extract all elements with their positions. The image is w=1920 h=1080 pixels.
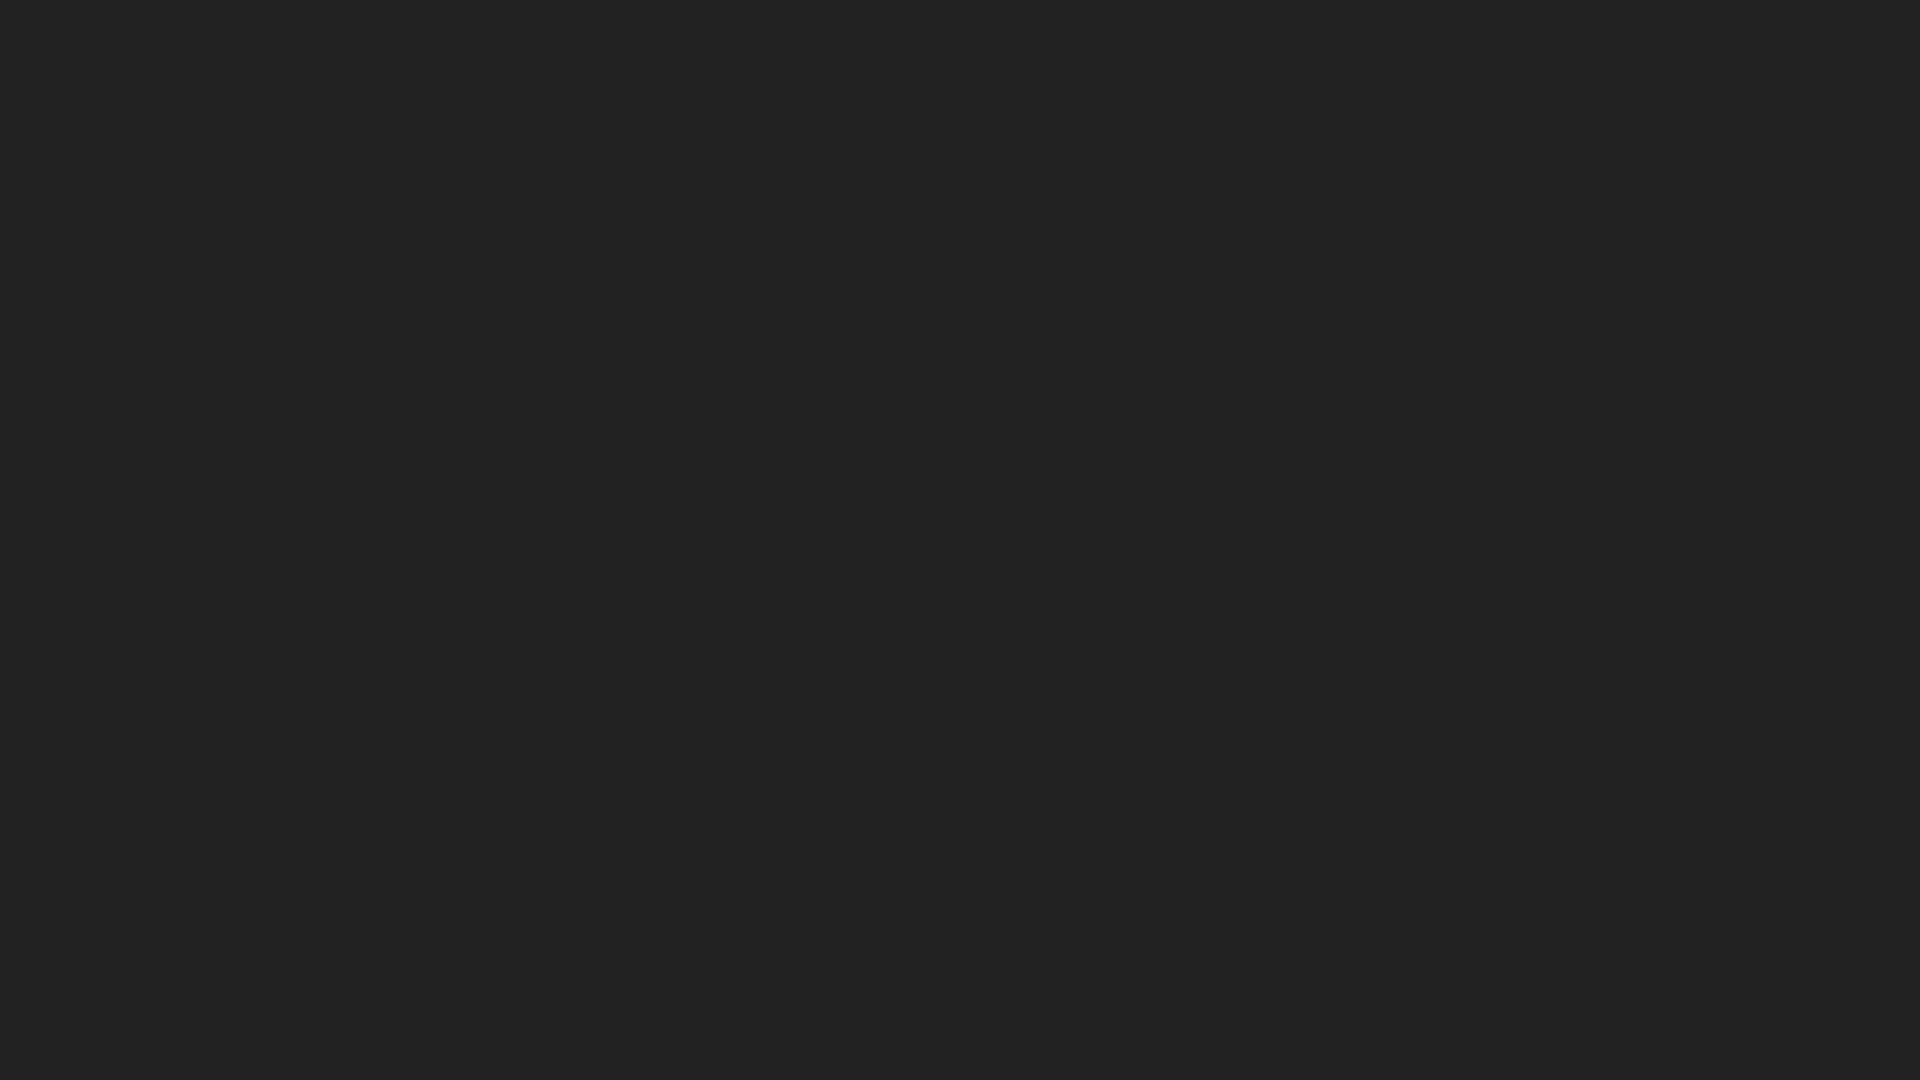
- aerial-orthophoto: [0, 0, 1920, 1080]
